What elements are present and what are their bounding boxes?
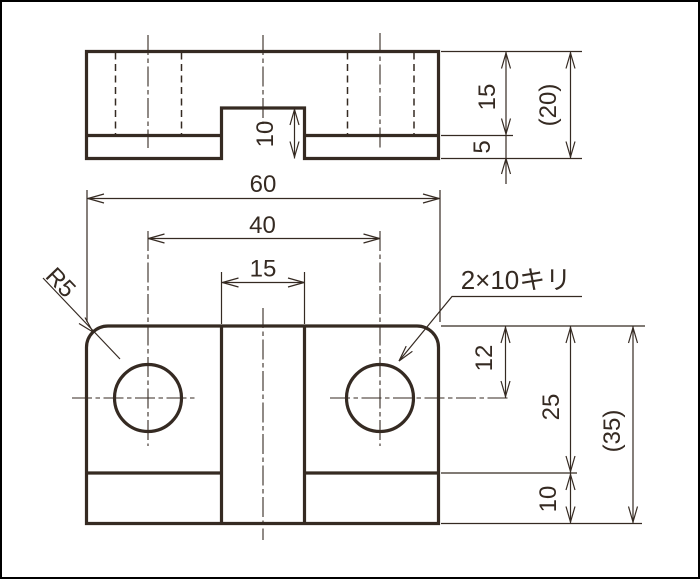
dim-slot-width-label: 15	[250, 256, 277, 283]
dim-corner-radius: R5	[40, 262, 120, 359]
dim-slot-height-label: 10	[252, 121, 279, 148]
dim-flange-height-label: 5	[469, 140, 496, 153]
sheet-border	[0, 0, 700, 579]
dim-corner-radius-label: R5	[40, 262, 81, 303]
dim-overall-depth-label: (35)	[599, 410, 626, 453]
dim-hole-offset-label: 12	[471, 345, 498, 372]
dim-hole-offset: 12	[471, 326, 510, 398]
dim-front-heights: 15 5 (20)	[441, 52, 582, 185]
dim-overall-depth: (35)	[599, 326, 638, 524]
dim-overall-height-label: (20)	[535, 84, 562, 127]
dim-upper-height-label: 15	[474, 84, 501, 111]
dim-hole-spacing: 40	[148, 212, 380, 243]
drawing-sheet: 10 15 5 (20) 60 40	[0, 0, 700, 579]
dim-overall-width-label: 60	[250, 171, 277, 198]
dim-hole-spacing-label: 40	[249, 212, 276, 239]
engineering-drawing: 10 15 5 (20) 60 40	[0, 0, 700, 579]
dim-depths: 25 10	[535, 326, 575, 524]
plan-view	[72, 231, 510, 540]
dim-slot-height: 10	[252, 108, 299, 159]
dim-flange-depth-label: 10	[535, 486, 562, 513]
dimensions: 10 15 5 (20) 60 40	[40, 52, 645, 524]
hole-note-label: 2×10キリ	[461, 265, 572, 295]
dim-overall-width: 60	[87, 171, 440, 322]
leader-arrow	[79, 318, 93, 333]
dim-body-depth-label: 25	[538, 394, 565, 421]
